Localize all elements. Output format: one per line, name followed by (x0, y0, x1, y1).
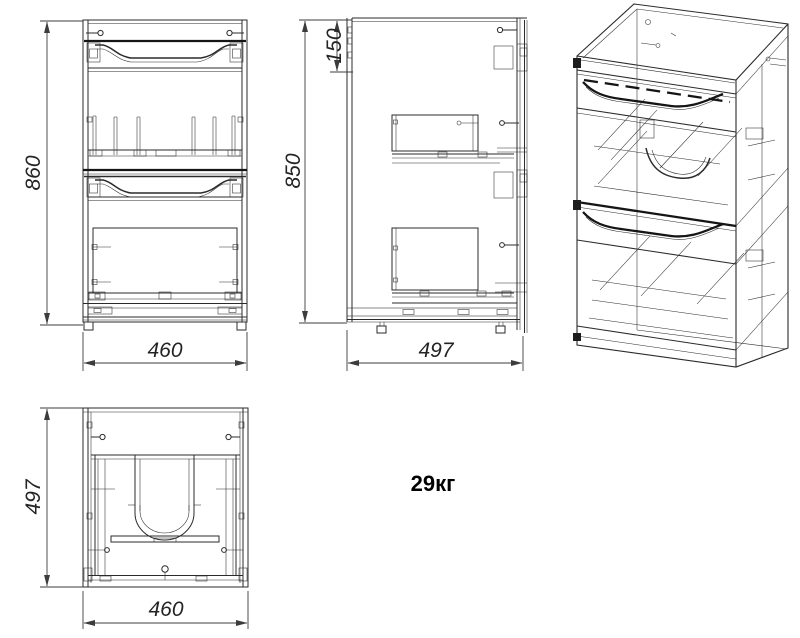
side-view (347, 18, 527, 333)
front-height-dim-label: 860 (22, 155, 45, 190)
isometric-view (573, 4, 788, 367)
front-view-top-drawer (84, 41, 246, 156)
side-depth-dimension: 497 (347, 330, 523, 371)
side-depth-dim-label: 497 (418, 339, 454, 362)
technical-drawing-page: 860 460 (0, 0, 800, 638)
isometric-drawer2-interior (589, 236, 744, 338)
isometric-drawer1-interior (594, 99, 742, 205)
front-view (83, 20, 247, 330)
side-view-hardware (494, 27, 527, 292)
side-view-carcass (347, 18, 527, 333)
isometric-side-face (736, 36, 788, 357)
top-view-carcass (83, 408, 248, 587)
front-width-dimension: 460 (83, 332, 247, 371)
top-width-dim-label: 460 (148, 598, 183, 621)
front-height-dimension: 860 (22, 21, 83, 325)
isometric-front-face (577, 70, 736, 359)
isometric-top-details (641, 20, 786, 67)
side-top-section-dimension: 150 (323, 21, 353, 72)
front-view-base (83, 292, 247, 330)
side-view-top-drawer-box (392, 115, 514, 163)
top-view-fittings (84, 489, 247, 581)
top-depth-dimension: 497 (22, 408, 83, 587)
top-view (83, 408, 248, 587)
front-width-dim-label: 460 (147, 339, 182, 362)
top-view-interior (91, 455, 240, 576)
top-width-dimension: 460 (83, 591, 248, 629)
front-view-bottom-drawer (83, 170, 247, 293)
side-view-bottom-drawer-box (392, 228, 514, 297)
side-height-dim-label: 850 (282, 153, 305, 188)
weight-label: 29кг (411, 471, 456, 496)
cabinet-drawing: 860 460 (0, 0, 800, 638)
side-height-dimension: 850 (282, 20, 352, 323)
side-top-section-dim-label: 150 (323, 28, 346, 63)
side-view-base (347, 303, 520, 333)
top-view-drain-channel (111, 455, 219, 542)
top-depth-dim-label: 497 (22, 478, 45, 514)
